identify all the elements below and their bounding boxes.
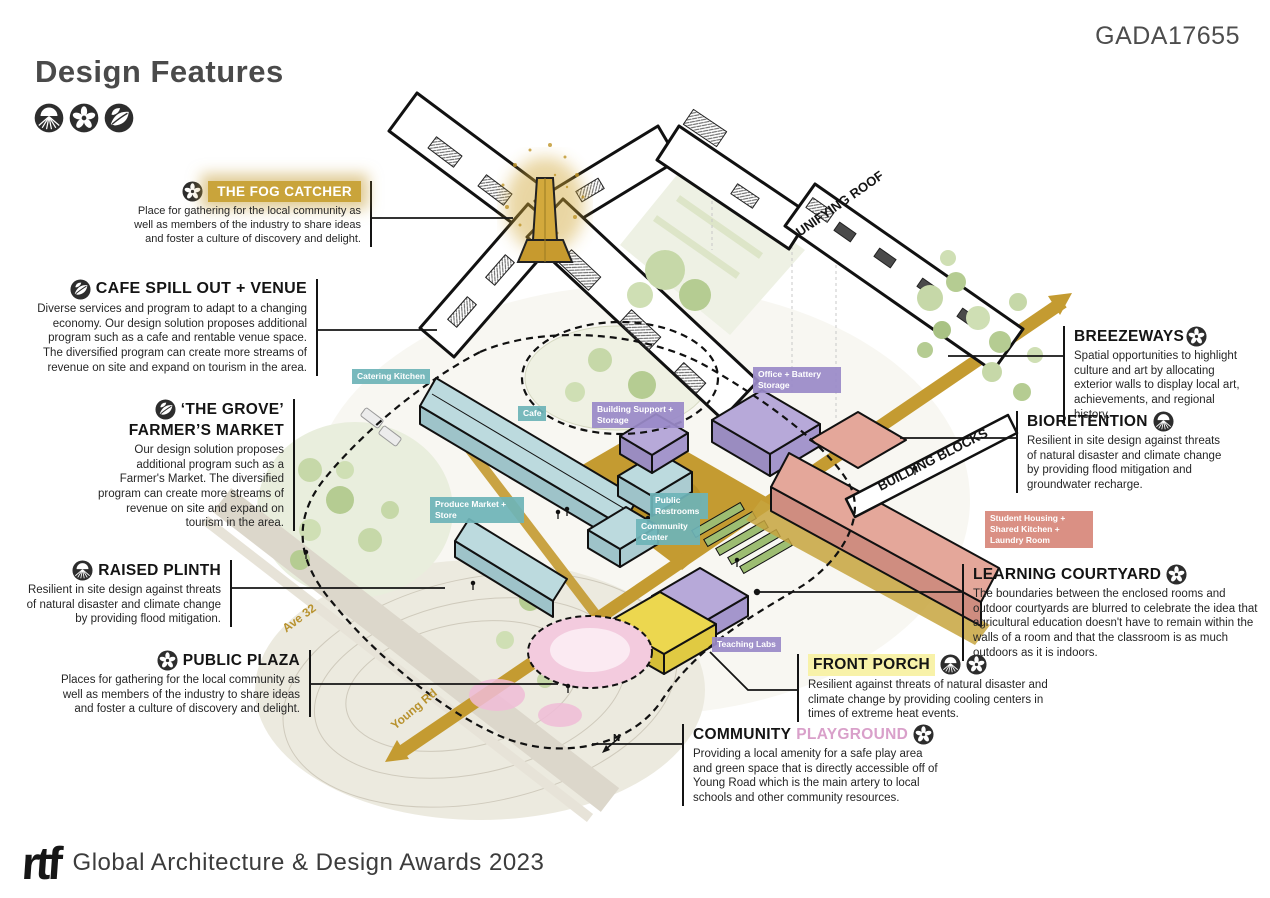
fog-catcher-tower <box>502 143 586 262</box>
callout-bioretention: BIORETENTION Resilient in site design ag… <box>1016 411 1225 493</box>
callout-title: COMMUNITY <box>693 725 791 745</box>
flower-icon <box>966 654 987 675</box>
map-tag-office-battery: Office + Battery Storage <box>753 367 841 393</box>
label-north: N <box>613 733 620 744</box>
map-tag-teaching-labs: Teaching Labs <box>712 637 781 652</box>
callout-title-row: THE FOG CATCHER <box>133 181 361 202</box>
rtf-logo: rtf <box>20 840 60 886</box>
leaf-icon <box>104 103 134 133</box>
callout-text: Resilient against threats of natural dis… <box>808 678 1050 722</box>
roots-icon <box>940 654 961 675</box>
callout-title: CAFE SPILL OUT + VENUE <box>96 279 307 299</box>
callout-text: The boundaries between the enclosed room… <box>973 587 1265 661</box>
callout-text: Our design solution proposes additional … <box>92 443 284 531</box>
roots-icon <box>1153 411 1174 432</box>
footer: rtf Global Architecture & Design Awards … <box>22 840 544 886</box>
callout-public-plaza: PUBLIC PLAZA Places for gathering for th… <box>52 650 311 717</box>
front-porch-building-yellow <box>608 592 716 674</box>
unifying-roof-building <box>389 93 1023 419</box>
roots-icon <box>34 103 64 133</box>
label-unifying-roof: UNIFYING ROOF <box>793 168 886 240</box>
callout-title: BIORETENTION <box>1027 412 1148 432</box>
callout-learning-courtyard: LEARNING COURTYARD The boundaries betwee… <box>962 564 1265 661</box>
legend-icons <box>34 103 134 133</box>
label-young-rd: Young Rd <box>388 686 440 733</box>
callout-title: PUBLIC PLAZA <box>183 651 300 671</box>
callout-title-accent: PLAYGROUND <box>796 725 908 745</box>
parked-cars <box>360 407 402 446</box>
callout-title: BREEZEWAYS <box>1074 327 1184 347</box>
flower-icon <box>69 103 99 133</box>
flower-icon <box>913 724 934 745</box>
callout-title-line2: FARMER’S MARKET <box>92 421 284 441</box>
page-title: Design Features <box>35 54 284 90</box>
callout-title: THE FOG CATCHER <box>208 181 361 202</box>
map-tag-produce-market: Produce Market + Store <box>430 497 524 523</box>
callout-title: RAISED PLINTH <box>98 561 221 581</box>
map-tag-public-restrooms: Public Restrooms <box>650 493 708 519</box>
footer-text: Global Architecture & Design Awards 2023 <box>73 849 545 877</box>
callout-text: Resilient in site design against threats… <box>1027 434 1225 493</box>
leaf-icon <box>70 279 91 300</box>
callout-grove-farmers-market: ‘THE GROVE’ FARMER’S MARKET Our design s… <box>92 399 295 531</box>
leaf-icon <box>155 399 176 420</box>
label-building-blocks: BUILDING BLOCKS <box>875 425 990 493</box>
callout-text: Place for gathering for the local commun… <box>133 204 361 246</box>
callout-front-porch: FRONT PORCH Resilient against threats of… <box>797 654 1050 722</box>
callout-text: Resilient in site design against threats… <box>23 583 221 627</box>
map-tag-catering-kitchen: Catering Kitchen <box>352 369 430 384</box>
callout-title: LEARNING COURTYARD <box>973 565 1161 585</box>
map-tag-building-support: Building Support + Storage <box>592 402 684 428</box>
flower-icon <box>1186 326 1207 347</box>
callout-community-playground: COMMUNITY PLAYGROUND Providing a local a… <box>682 724 943 806</box>
callout-text: Places for gathering for the local commu… <box>52 673 300 717</box>
flower-icon <box>1166 564 1187 585</box>
callout-fog-catcher: THE FOG CATCHER Place for gathering for … <box>133 181 372 247</box>
callout-cafe-spill-out: CAFE SPILL OUT + VENUE Diverse services … <box>29 279 318 376</box>
callout-raised-plinth: RAISED PLINTH Resilient in site design a… <box>23 560 232 627</box>
callout-text: Providing a local amenity for a safe pla… <box>693 747 943 806</box>
map-tag-community-center: Community Center <box>636 519 700 545</box>
community-playground-area <box>469 616 652 727</box>
submission-code: GADA17655 <box>1095 22 1240 51</box>
presentation-board: GADA17655 Design Features <box>0 0 1270 898</box>
callout-title: FRONT PORCH <box>808 654 935 676</box>
label-ave-32: Ave 32 <box>280 601 319 635</box>
flower-icon <box>182 181 203 202</box>
flower-icon <box>157 650 178 671</box>
map-tag-student-housing: Student Housing + Shared Kitchen + Laund… <box>985 511 1093 548</box>
callout-breezeways: BREEZEWAYS Spatial opportunities to high… <box>1063 326 1252 423</box>
map-tag-cafe: Cafe <box>518 406 546 421</box>
roots-icon <box>72 560 93 581</box>
callout-text: Diverse services and program to adapt to… <box>29 302 307 376</box>
callout-title: ‘THE GROVE’ <box>181 400 284 420</box>
